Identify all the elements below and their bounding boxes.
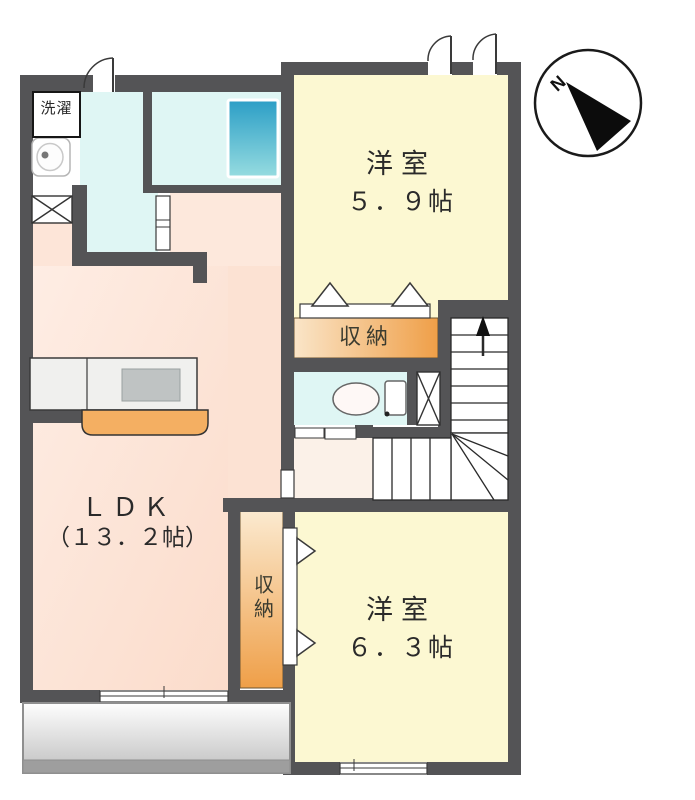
window-gap-2: [473, 62, 497, 75]
ldk-floor-corridor-right: [228, 266, 281, 498]
bedroom-2-label: 洋室: [294, 596, 508, 626]
entry-door-gap: [93, 75, 115, 92]
washroom-hall-floor: [87, 185, 158, 252]
shaft-box-right: [417, 372, 440, 425]
stair-hall-floor: [294, 438, 373, 500]
stairs-lower-flight: [373, 438, 451, 500]
ldk-floor-main: [33, 266, 228, 690]
stairs-winder: [451, 433, 508, 500]
toilet-tank: [385, 381, 406, 415]
ldk-floor-left: [33, 222, 72, 266]
washroom-floor: [80, 92, 143, 185]
toilet-door-2: [325, 428, 356, 439]
compass: N: [535, 50, 641, 156]
washbasin-bowl: [37, 144, 63, 171]
bedroom-1-label: 洋室: [294, 150, 508, 180]
balcony: [23, 703, 290, 773]
balcony-rail: [23, 760, 290, 773]
ldk-hall-door: [281, 470, 294, 498]
closet-lower-label: 収納: [240, 508, 283, 688]
ldk-label: ＬＤＫ: [20, 493, 235, 522]
bathtub: [228, 100, 278, 177]
casement-window-1: [428, 36, 451, 61]
window-gap-1: [428, 62, 452, 75]
casement-window-2: [473, 34, 496, 60]
kitchen-table: [82, 410, 208, 435]
toilet-door-1: [295, 428, 324, 438]
bedroom-2-size-label: ６．３帖: [294, 635, 508, 663]
floorplan-page: N 洗濯 洋室 ５．９帖 収納 ＬＤＫ （１３．２帖） 収納 洋室 ６．３帖: [0, 0, 695, 800]
ldk-size-label: （１３．２帖）: [20, 525, 235, 550]
hall-ldk-door: [156, 196, 170, 250]
toilet-flush-dot: [385, 412, 390, 417]
closet-upper-label: 収納: [294, 325, 438, 349]
floorplan-drawing: N: [0, 0, 695, 800]
washbasin-faucet: [42, 152, 49, 159]
bedroom-1-size-label: ５．９帖: [294, 189, 508, 217]
shaft-box-left: [32, 196, 72, 223]
laundry-label: 洗濯: [33, 101, 80, 118]
kitchen-stove: [122, 369, 180, 401]
toilet-bowl: [333, 383, 379, 415]
